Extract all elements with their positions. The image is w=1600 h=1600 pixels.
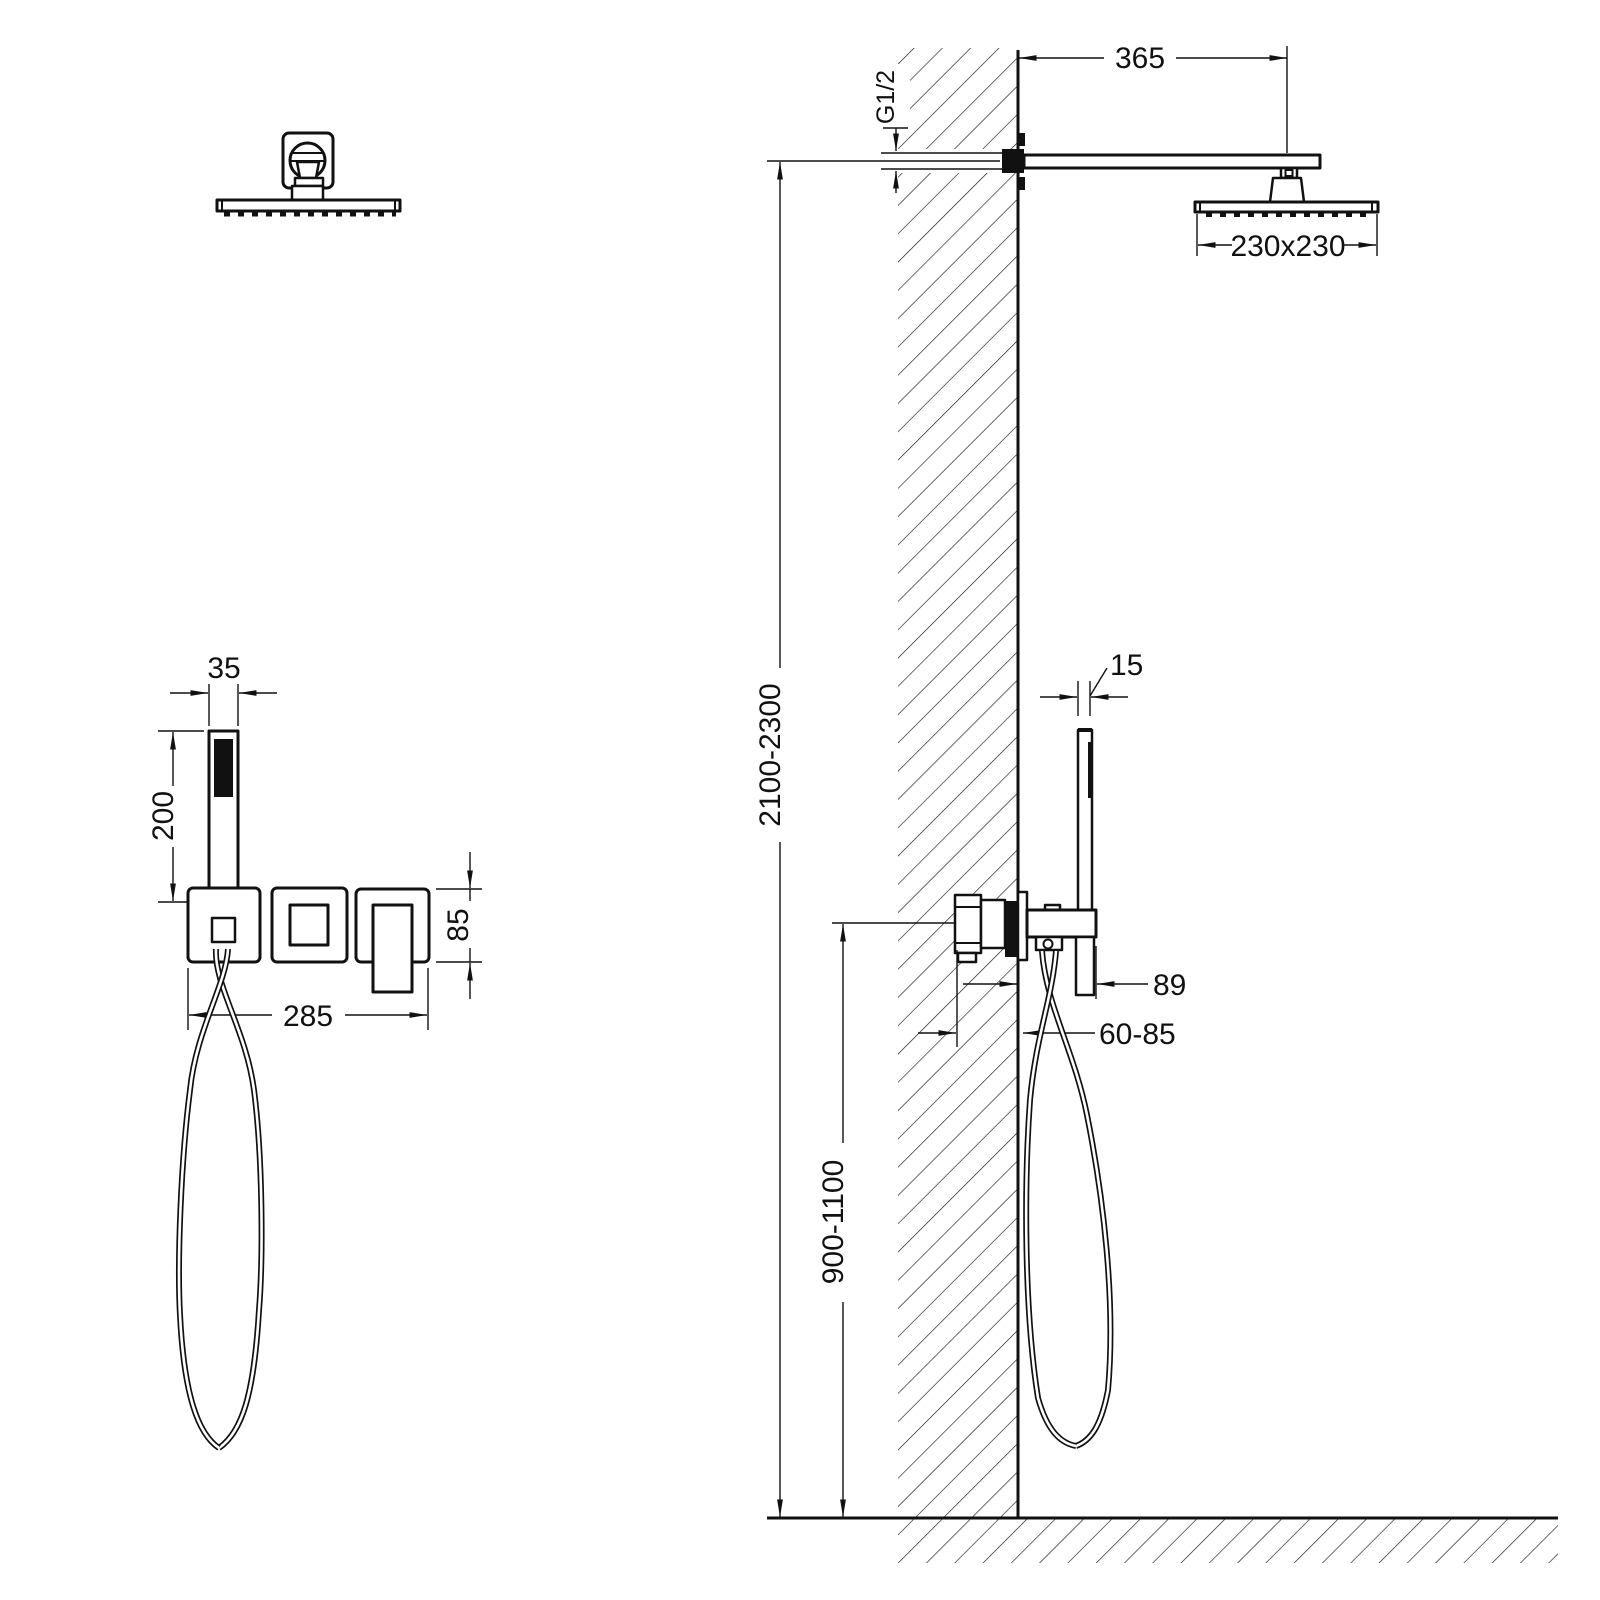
rain-head-front [217, 133, 400, 215]
valve-embedded-foot [958, 953, 976, 962]
arm-flange-tab-top [1018, 133, 1025, 146]
valve-embedded-body [955, 895, 981, 953]
dim-label-365: 365 [1115, 42, 1165, 75]
shower-arm-side [1024, 155, 1320, 168]
dim-label-85: 85 [442, 908, 475, 941]
lever-handle-front [373, 905, 412, 992]
dim-label-60-85: 60-85 [1099, 1018, 1176, 1051]
dim-handset-width: 35 [170, 652, 277, 726]
valve-cartridge-housing [981, 900, 1005, 948]
dim-label-285: 285 [283, 1000, 333, 1033]
hand-shower-spray-face-side [1088, 742, 1093, 798]
valve-mounting-collar [1005, 901, 1018, 957]
dim-plate-height: 85 [436, 852, 482, 999]
front-view: 35 200 [147, 133, 482, 1448]
arm-flange-tab-bottom [1018, 177, 1025, 190]
shower-hose-front [179, 949, 262, 1448]
dim-label-900-1100: 900-1100 [817, 1160, 850, 1285]
holder-body-overlay [212, 918, 235, 942]
dim-label-35: 35 [207, 652, 240, 685]
dim-label-230x230: 230x230 [1230, 230, 1345, 263]
dim-label-89: 89 [1153, 969, 1186, 1002]
dim-handset-length: 200 [147, 731, 206, 902]
lever-handle-side [1076, 937, 1094, 995]
dim-head-size: 230x230 [1197, 214, 1377, 263]
rain-head-plate-front [217, 200, 400, 211]
dim-label-15: 15 [1110, 649, 1143, 682]
dim-label-200: 200 [147, 791, 180, 841]
dim-handset-depth: 15 [1040, 649, 1143, 716]
dim-overall-height: 2100-2300 [754, 162, 787, 1517]
side-view: 365 G1/2 230x230 2100-2300 [754, 42, 1558, 1563]
dim-arm-length: 365 [1019, 42, 1287, 153]
dim-label-2100-2300: 2100-2300 [754, 683, 787, 826]
shower-hose-side [1026, 951, 1110, 1446]
shower-installation-drawing: 365 G1/2 230x230 2100-2300 [0, 0, 1600, 1600]
head-mount-side [1270, 178, 1304, 202]
hand-shower-spray-face-front [214, 739, 233, 797]
rain-head-plate-side [1195, 202, 1378, 212]
arm-wall-connector [1002, 149, 1024, 173]
thread-label: G1/2 [872, 70, 900, 124]
diverter-window [290, 905, 328, 945]
dim-15-leader [1090, 668, 1107, 696]
wall-hatch [898, 48, 1018, 1563]
valve-body-side [1027, 910, 1096, 937]
head-ball-neck-front [297, 162, 319, 178]
hand-shower-cap-side [1078, 728, 1092, 732]
technical-drawing-canvas: 365 G1/2 230x230 2100-2300 [0, 0, 1600, 1600]
floor-hatch [1018, 1518, 1558, 1563]
